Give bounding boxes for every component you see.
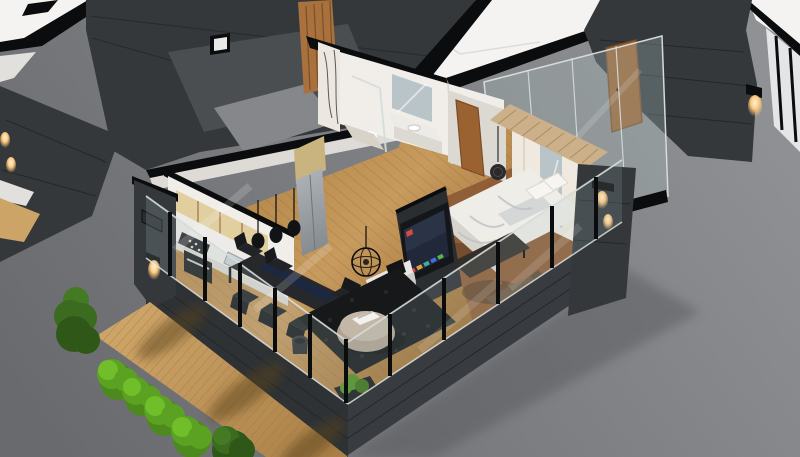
render-canvas <box>0 0 800 457</box>
wall-sconce <box>748 95 762 117</box>
marble-shower-column <box>318 42 340 132</box>
wall-sconce <box>0 132 10 148</box>
wall-sconce <box>6 157 16 173</box>
floorplan-render <box>0 0 800 457</box>
round-pendant <box>490 164 506 180</box>
